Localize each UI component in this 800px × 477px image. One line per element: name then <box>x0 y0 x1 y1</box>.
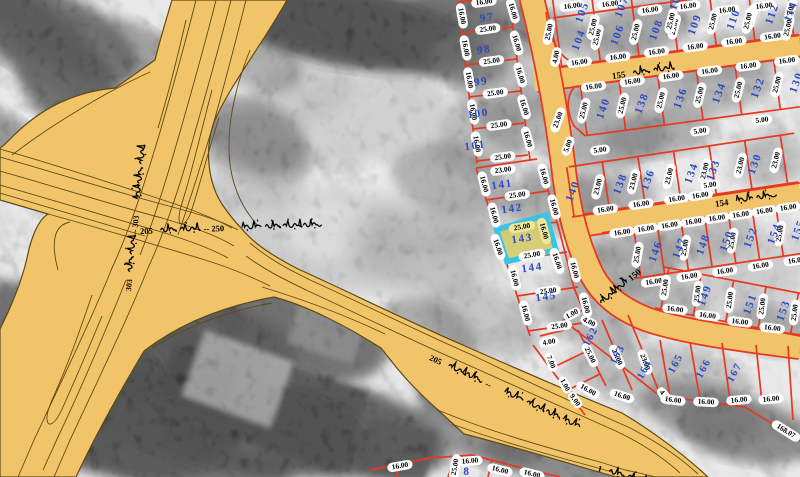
svg-text:16.00: 16.00 <box>461 455 479 465</box>
svg-text:16.00: 16.00 <box>762 393 780 403</box>
svg-text:97: 97 <box>479 11 495 25</box>
svg-text:-- 250: -- 250 <box>203 223 224 234</box>
svg-text:5.00: 5.00 <box>593 144 607 155</box>
svg-text:8: 8 <box>463 466 470 477</box>
svg-text:205: 205 <box>140 226 153 236</box>
svg-text:16.00: 16.00 <box>787 254 800 265</box>
svg-text:16.00: 16.00 <box>697 397 714 407</box>
svg-text:155: 155 <box>611 69 626 81</box>
svg-text:98: 98 <box>476 43 492 57</box>
svg-text:5.00: 5.00 <box>755 114 769 125</box>
svg-text:154: 154 <box>714 197 729 209</box>
svg-text:99: 99 <box>473 75 489 89</box>
svg-text:303: 303 <box>124 279 134 292</box>
svg-text:5.00: 5.00 <box>693 125 707 136</box>
svg-text:16.00: 16.00 <box>730 394 748 404</box>
